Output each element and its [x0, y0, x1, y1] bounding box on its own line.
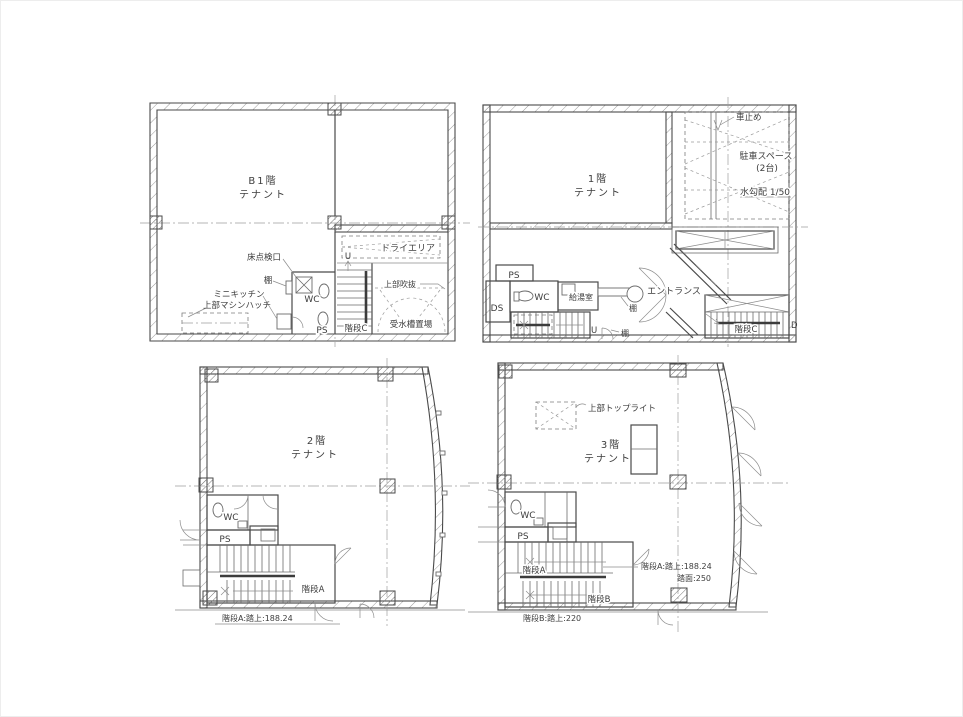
f2-label-wc: WC	[223, 513, 238, 523]
f1-leader-car-stop	[720, 117, 734, 125]
f2-stair-treads-lower	[227, 580, 290, 603]
b1-room-label-line2: テナント	[239, 189, 287, 201]
f3-toplight-x	[536, 402, 576, 429]
b1-room-label-line1: B1階	[248, 175, 277, 187]
f2-stair-treads-upper	[207, 545, 295, 572]
floorplan-drawing: B1階 テナント 床点検口 棚 ミニキッチン 上部マシンハッチ WC PS 階段…	[0, 0, 963, 717]
f2-room-label-line2: テナント	[291, 449, 339, 461]
f3-label-stair-b: 階段B	[588, 594, 611, 605]
f3-column	[671, 588, 687, 602]
f2-column	[199, 478, 213, 492]
b1-label-up: U	[345, 252, 351, 262]
b1-stair-arrow	[345, 261, 351, 271]
b1-label-wc: WC	[304, 295, 319, 305]
f1-label-kitchen: 給湯室	[569, 292, 593, 302]
b1-wc-basin	[319, 284, 329, 298]
plan-f2: 2階 テナント WC PS 階段A 階段A:踏上:188.24	[175, 358, 470, 626]
f2-mullion	[440, 451, 445, 455]
f1-label-parking-count: (2台)	[756, 162, 778, 174]
b1-label-machine-hatch: 上部マシンハッチ	[203, 300, 271, 311]
f1-label-up: U	[591, 326, 597, 336]
f2-bottom-wall	[200, 601, 437, 608]
b1-label-water-tank: 受水槽置場	[390, 319, 433, 330]
plan-f1: 1階 テナント 車止め 駐車スペース (2台) 水勾配 1/50 PS DS W…	[478, 97, 808, 347]
b1-leader-shelf	[273, 281, 286, 286]
f1-label-shelf-b: 棚	[621, 328, 629, 338]
f2-column	[380, 479, 395, 493]
f1-label-shelf-a: 棚	[629, 303, 637, 313]
f3-stair-a-note2: 踏面:250	[677, 573, 711, 583]
f1-label-down: D	[791, 321, 798, 331]
b1-label-ps: PS	[316, 326, 327, 336]
f3-stair-a-treads	[505, 542, 613, 573]
f1-label-parking: 駐車スペース	[740, 150, 793, 162]
f2-wc-sink	[238, 521, 247, 528]
f3-stair-arrows	[526, 558, 606, 599]
b1-complex-top-wall	[335, 225, 448, 232]
f3-datum-line	[468, 527, 768, 612]
f1-top-wall	[483, 105, 796, 112]
b1-leader-floor-hatch	[283, 259, 296, 277]
f1-stair-c-brace	[705, 295, 789, 312]
b1-label-dry-area: ドライエリア	[381, 243, 435, 254]
f2-column	[378, 367, 393, 381]
f1-room-label-line1: 1階	[588, 173, 608, 185]
f1-leader-shelf-b	[611, 330, 619, 332]
plan-f3: 上部トップライト 3階 テナント WC PS 階段A 階段B 階段A:踏上:18…	[468, 355, 788, 635]
f1-tenant-parking-wall	[666, 112, 672, 223]
b1-label-floor-hatch: 床点検口	[247, 252, 281, 263]
f3-door-arc-1	[732, 407, 755, 430]
b1-wc-door-arc	[292, 317, 303, 328]
f3-top-wall	[498, 363, 723, 370]
f3-column	[670, 475, 686, 489]
f2-mullion	[440, 533, 445, 537]
f2-wc-door-arcs	[234, 495, 277, 509]
f3-room-label-line2: テナント	[584, 453, 632, 465]
f1-tenant-south-wall	[490, 223, 672, 229]
b1-shelf-box	[286, 281, 292, 294]
b1-label-stair-c: 階段C	[345, 323, 368, 334]
f2-stair-arrow	[221, 587, 293, 595]
b1-column	[150, 216, 162, 229]
b1-outer-wall	[150, 103, 455, 341]
f3-room-label-line1: 3階	[601, 439, 621, 451]
f3-leader-toplight	[576, 404, 586, 407]
f1-right-wall	[789, 105, 796, 342]
b1-kitchen-unit	[277, 314, 291, 329]
f1-label-car-stop: 車止め	[736, 112, 762, 123]
f1-room-label-line2: テナント	[574, 187, 622, 199]
floorplan-sheet: B1階 テナント 床点検口 棚 ミニキッチン 上部マシンハッチ WC PS 階段…	[0, 0, 963, 717]
f2-duct-box	[261, 529, 275, 541]
f1-label-slope: 水勾配 1/50	[740, 186, 790, 198]
f2-label-ps: PS	[219, 535, 230, 545]
b1-label-upper-void: 上部吹抜	[384, 279, 416, 289]
f1-label-ps: PS	[508, 271, 519, 281]
b1-label-shelf: 棚	[264, 275, 273, 286]
f1-label-stair-c: 階段C	[735, 324, 758, 335]
f1-round-column	[627, 286, 643, 302]
f3-column	[670, 364, 686, 377]
f1-leader-shelf-a	[621, 297, 628, 306]
f1-entrance-diag-wall-lower	[666, 308, 698, 338]
f1-car-stop-symbol	[714, 120, 722, 130]
f2-mullion	[436, 411, 441, 415]
f3-column	[499, 365, 512, 378]
f3-label-toplight: 上部トップライト	[588, 403, 656, 414]
f2-label-stair-a: 階段A	[302, 584, 325, 595]
f3-duct-box	[553, 527, 567, 539]
f2-wc-toilet	[213, 503, 223, 517]
b1-label-mini-kitchen: ミニキッチン	[213, 290, 264, 300]
f3-furniture	[631, 425, 657, 474]
f1-label-entrance: エントランス	[647, 286, 701, 297]
f2-top-wall	[200, 367, 428, 374]
f3-stair-b-note: 階段B:踏上:220	[523, 613, 581, 623]
f1-counter	[598, 288, 630, 296]
f1-entrance-door-arc-lower	[639, 295, 666, 322]
f2-stair-note: 階段A:踏上:188.24	[222, 613, 293, 623]
f2-left-niche	[183, 570, 200, 586]
f2-column	[380, 591, 395, 605]
f1-parking-ramp-edge	[711, 112, 716, 219]
f2-stair-door-arc	[335, 548, 351, 564]
f1-brace-x	[676, 231, 774, 249]
plan-b1: B1階 テナント 床点検口 棚 ミニキッチン 上部マシンハッチ WC PS 階段…	[140, 95, 470, 347]
f3-door-arc-3	[739, 503, 762, 526]
f1-label-ds: DS	[491, 304, 504, 314]
b1-wc-toilet	[318, 312, 328, 326]
f1-label-wc: WC	[534, 293, 549, 303]
f3-label-stair-a: 階段A	[523, 565, 546, 576]
f3-stair-a-note1: 階段A:踏上:188.24	[641, 561, 712, 571]
f3-door-arc-2	[738, 453, 761, 476]
f3-label-ps: PS	[517, 532, 528, 542]
f2-mullion	[442, 491, 447, 495]
f1-wc-tank	[514, 292, 519, 301]
f3-label-wc: WC	[520, 511, 535, 521]
f2-mullion	[436, 572, 441, 576]
f2-column	[205, 369, 218, 382]
f2-room-label-line1: 2階	[307, 435, 327, 447]
f3-column	[497, 475, 511, 489]
f3-curved-wall	[717, 363, 741, 607]
